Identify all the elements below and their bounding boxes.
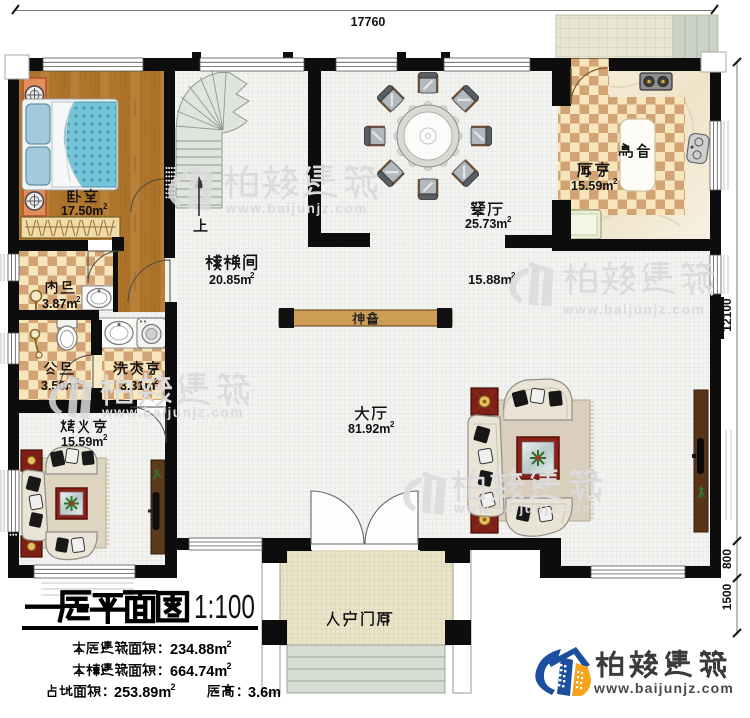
svg-text:：: ：	[157, 663, 170, 678]
svg-text:12100: 12100	[720, 298, 734, 332]
svg-text:www.baijunjz.com: www.baijunjz.com	[101, 405, 244, 420]
svg-text:800: 800	[720, 549, 734, 569]
svg-text:www.baijunjz.com: www.baijunjz.com	[593, 680, 734, 696]
svg-text:234.88m: 234.88m	[170, 642, 227, 658]
svg-text:1:100: 1:100	[194, 588, 255, 625]
svg-text:17760: 17760	[351, 15, 386, 29]
svg-text:2: 2	[613, 177, 618, 186]
svg-text:：: ：	[157, 641, 170, 656]
svg-text:17.50m: 17.50m	[61, 204, 103, 218]
svg-text:3.87m: 3.87m	[42, 297, 77, 311]
svg-text:2: 2	[227, 661, 232, 671]
svg-text:1500: 1500	[720, 583, 734, 610]
svg-text:25.73m: 25.73m	[465, 217, 507, 231]
svg-text:2: 2	[507, 215, 512, 224]
svg-text:www.baijunjz.com: www.baijunjz.com	[225, 201, 368, 216]
svg-text:20.85m: 20.85m	[209, 273, 251, 287]
svg-text:2: 2	[171, 682, 176, 692]
svg-text:2: 2	[390, 420, 395, 429]
svg-text:81.92m: 81.92m	[348, 422, 390, 436]
svg-text:253.89m: 253.89m	[114, 685, 171, 701]
svg-text:15.59m: 15.59m	[571, 179, 613, 193]
svg-text:www.baijunjz.com: www.baijunjz.com	[562, 302, 705, 317]
svg-text:2: 2	[103, 433, 108, 442]
svg-text:2: 2	[250, 271, 255, 280]
svg-text:3.6m: 3.6m	[248, 685, 281, 701]
svg-text:2: 2	[227, 639, 232, 649]
svg-text:www.baijunjz.com: www.baijunjz.com	[453, 501, 596, 516]
svg-text:664.74m: 664.74m	[170, 664, 227, 680]
svg-text:15.59m: 15.59m	[61, 435, 103, 449]
svg-text:2: 2	[76, 295, 81, 304]
svg-text:2: 2	[103, 202, 108, 211]
svg-text:15.88m: 15.88m	[468, 272, 512, 287]
